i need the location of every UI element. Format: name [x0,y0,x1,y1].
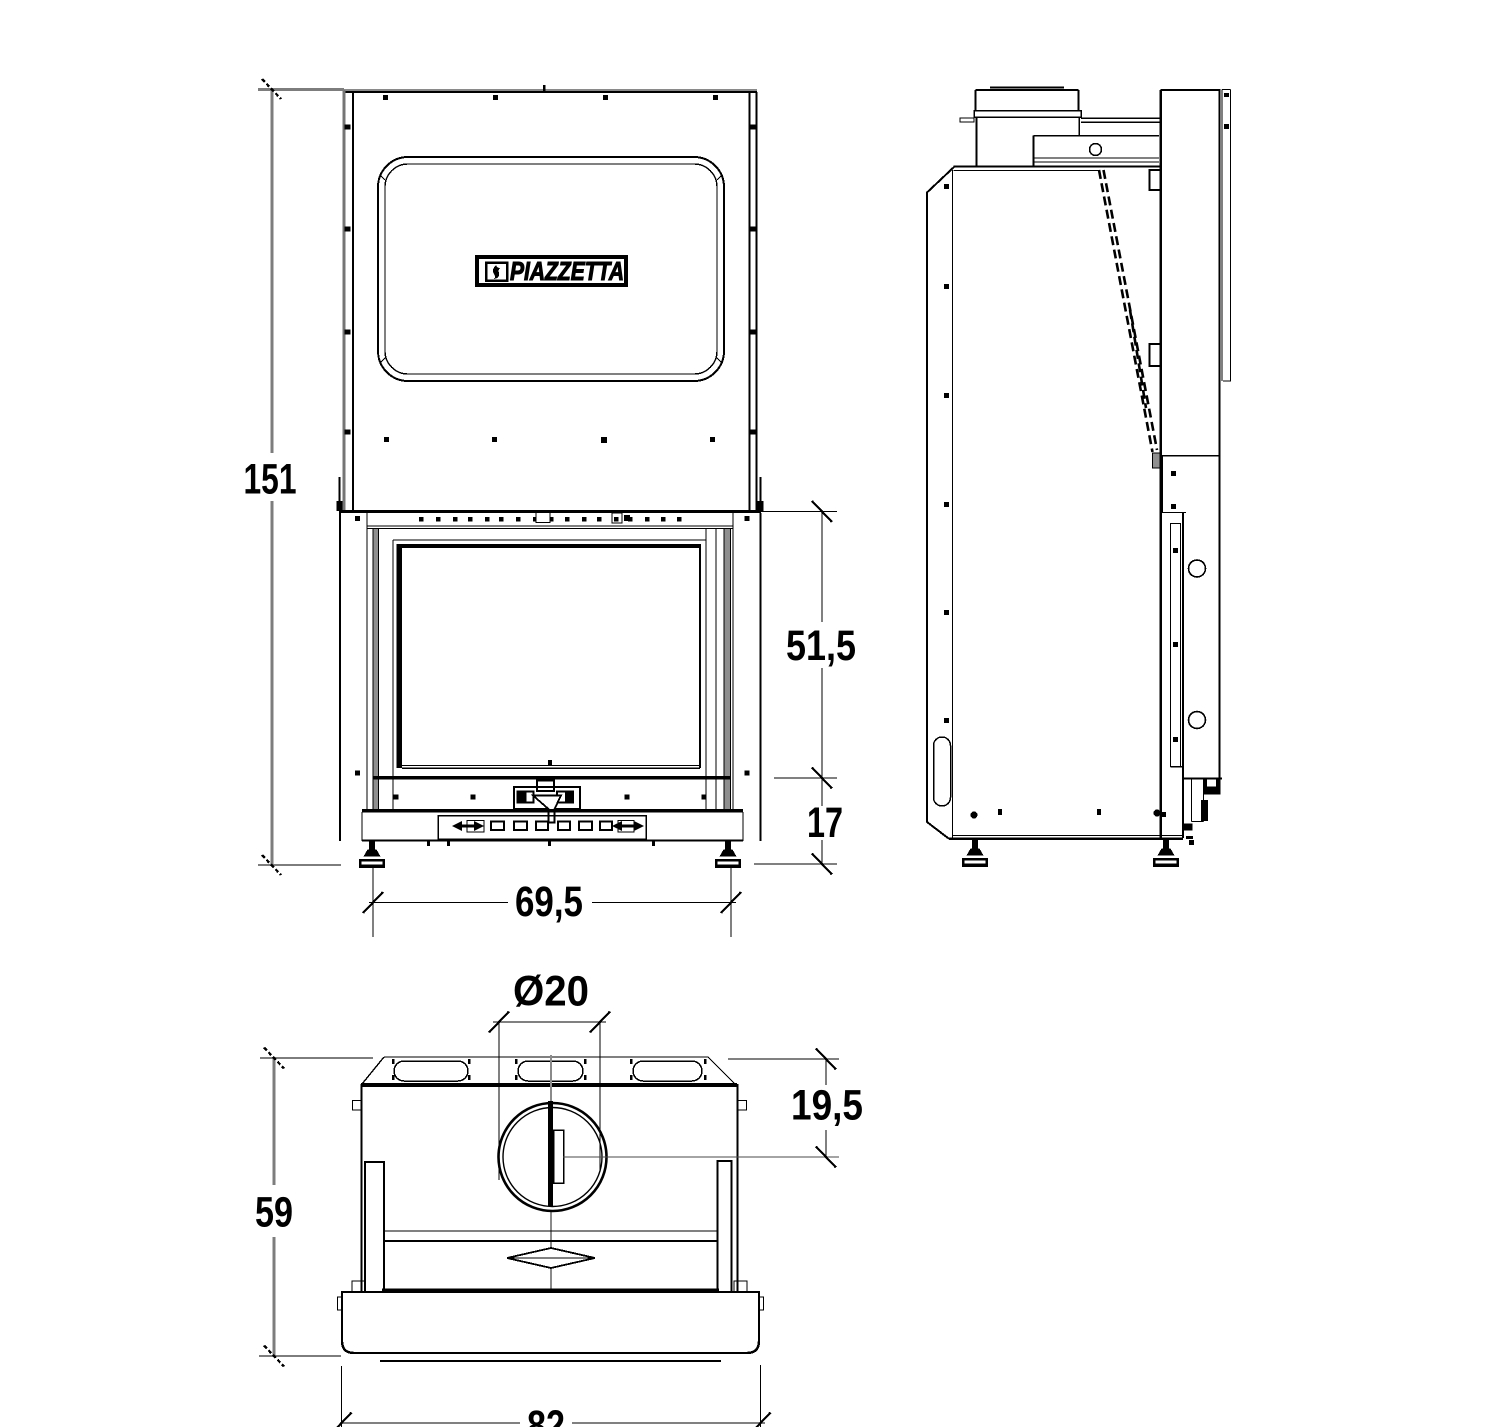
svg-text:59: 59 [255,1189,293,1237]
svg-text:Ø20: Ø20 [513,968,589,1016]
svg-text:51,5: 51,5 [786,622,856,670]
svg-text:PIAZZETTA: PIAZZETTA [510,256,624,286]
svg-text:17: 17 [807,799,843,847]
svg-text:19,5: 19,5 [791,1082,863,1130]
svg-text:151: 151 [244,456,297,504]
svg-text:82: 82 [527,1402,565,1427]
svg-text:69,5: 69,5 [515,878,583,926]
